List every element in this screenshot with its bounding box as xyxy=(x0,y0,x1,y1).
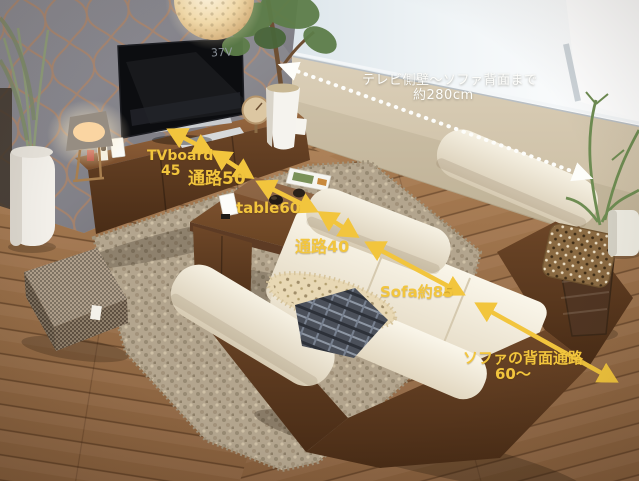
label-tvboard: TVboard xyxy=(147,149,213,164)
label-wall-to-sofa-line1: テレビ側壁〜ソファ背面まで xyxy=(362,74,538,88)
ottoman-tag xyxy=(90,305,102,320)
label-back-aisle-line2: 60〜 xyxy=(495,367,531,383)
tv-size-label: 37V xyxy=(211,46,233,59)
label-aisle-50: 通路50 xyxy=(188,171,246,189)
lamp-glow xyxy=(73,122,105,142)
label-table-60: table60 xyxy=(236,201,300,217)
label-sofa-85: Sofa約85 xyxy=(380,285,454,301)
label-tvboard-depth: 45 xyxy=(161,164,180,179)
label-wall-to-sofa-line2: 約280cm xyxy=(413,89,474,103)
label-aisle-40: 通路40 xyxy=(295,239,349,256)
living-room-photo: 37V テレビ側壁〜ソファ背面まで 約280cm TVboard 45 通路50… xyxy=(0,0,639,481)
